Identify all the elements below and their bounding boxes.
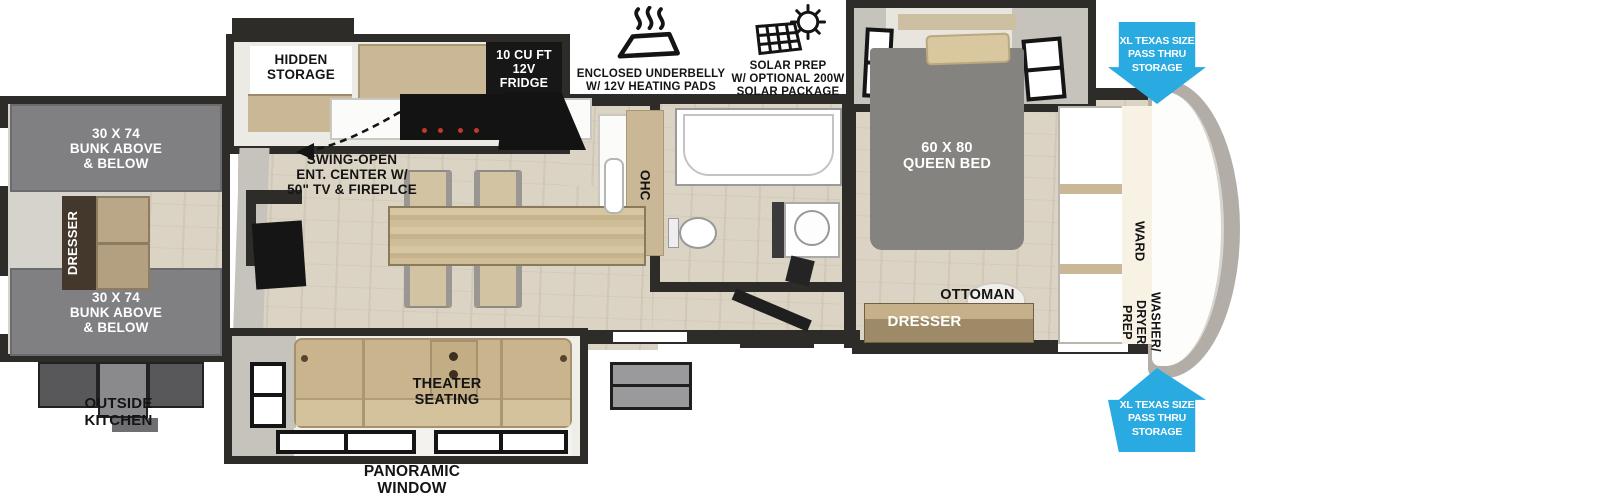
ohc-label: OHC: [632, 150, 658, 220]
ottoman-label: OTTOMAN: [920, 287, 1035, 303]
toilet-bowl: [679, 217, 717, 249]
panoramic-window-label: PANORAMIC WINDOW: [322, 463, 502, 498]
wardrobe: [1058, 106, 1124, 344]
cooktop-burner: [438, 128, 443, 133]
solar-prep-label: SOLAR PREP W/ OPTIONAL 200W SOLAR PACKAG…: [702, 60, 874, 99]
vanity-side-panel: [772, 202, 784, 258]
panoramic-window-left: [276, 430, 416, 454]
pillow: [926, 33, 1011, 66]
dinette-chair: [404, 262, 452, 308]
bunk-dresser-label: DRESSER: [66, 193, 92, 293]
toilet-tank: [668, 218, 679, 248]
tv: [252, 220, 306, 289]
pass-thru-arrow-up: XL TEXAS SIZE PASS THRU STORAGE: [1108, 368, 1206, 452]
entry-door-opening: [613, 332, 687, 342]
couch-cushion-gap: [362, 340, 365, 426]
cooktop-burner: [474, 128, 479, 133]
washer-dryer-label: WASHER/ DRYER PREP: [1118, 270, 1164, 374]
hidden-storage-label: HIDDEN STORAGE: [250, 52, 352, 82]
bedroom-window-right: [1021, 36, 1066, 101]
armrest-button: [301, 355, 308, 362]
cooktop: [400, 94, 506, 140]
rv-floorplan: 30 X 74 BUNK ABOVE & BELOW 30 X 74 BUNK …: [0, 0, 1600, 501]
bottom-wall-window: [740, 330, 814, 348]
cooktop-burner: [458, 128, 463, 133]
cupholder: [449, 352, 458, 361]
kitchen-sink: [604, 158, 624, 214]
pass-thru-bottom-label: XL TEXAS SIZE PASS THRU STORAGE: [1108, 399, 1206, 439]
dinette-chair: [474, 262, 522, 308]
heating-pads-icon: [610, 6, 686, 70]
ent-center-label: SWING-OPEN ENT. CENTER W/ 50" TV & FIREP…: [272, 152, 432, 197]
dinette-table: [388, 206, 646, 266]
bedroom-dresser-label: DRESSER: [872, 314, 977, 331]
bunk-top-label: 30 X 74 BUNK ABOVE & BELOW: [14, 126, 218, 171]
outside-kitchen-label: OUTSIDE KITCHEN: [46, 396, 191, 430]
bunk-cabinet: [96, 196, 150, 290]
bunk-bottom-label: 30 X 74 BUNK ABOVE & BELOW: [14, 290, 218, 335]
cooktop-burner: [422, 128, 427, 133]
queen-bed-label: 60 X 80 QUEEN BED: [870, 140, 1024, 172]
bunkroom-window-top: [0, 128, 8, 186]
headboard: [898, 14, 1016, 30]
theater-side-window: [250, 362, 286, 428]
entry-steps-tread: [613, 384, 689, 387]
shower-pan: [683, 114, 834, 176]
theater-seating-label: THEATER SEATING: [382, 376, 512, 408]
panoramic-window-right: [434, 430, 568, 454]
pass-thru-top-label: XL TEXAS SIZE PASS THRU STORAGE: [1108, 35, 1206, 75]
bunkroom-aisle: [150, 192, 222, 270]
armrest-button: [560, 355, 567, 362]
solar-prep-icon: [748, 4, 826, 64]
bunkroom-window-bottom: [0, 276, 8, 334]
vanity-sink: [794, 210, 830, 246]
fridge-label: 10 CU FT 12V FRIDGE: [486, 48, 562, 90]
